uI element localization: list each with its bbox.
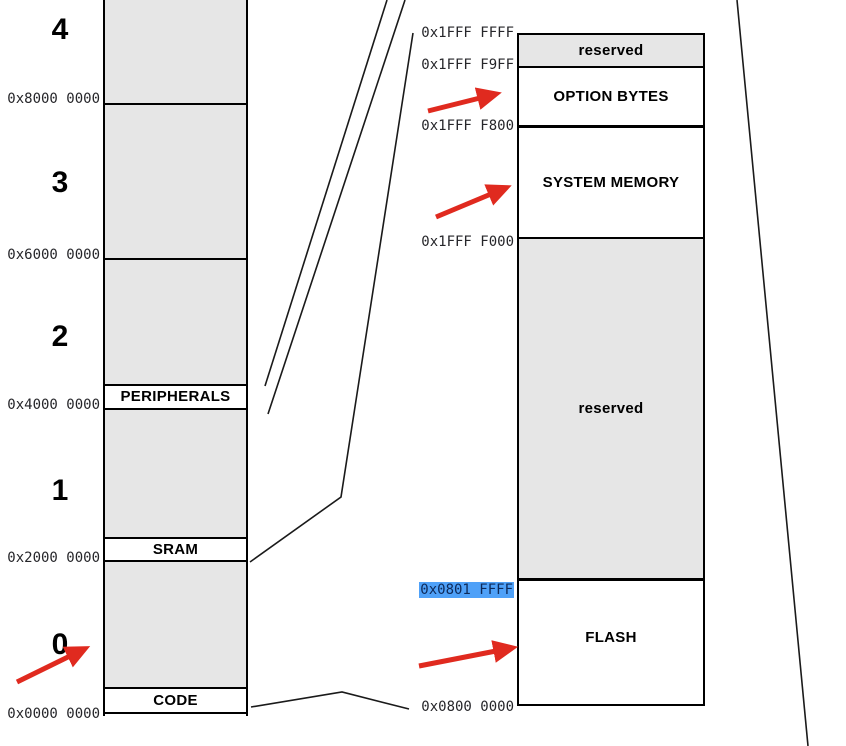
address-0x0801FFFF-selected: 0x0801 FFFF [400,581,514,599]
address-0x20000000: 0x2000 0000 [0,549,100,567]
sram-band: SRAM [105,537,246,562]
sram-label: SRAM [105,541,246,558]
region-number-4: 4 [28,15,92,45]
region-0-block [105,562,246,687]
connector-line-code-bottom-to-detail-bottom [251,692,409,709]
region-3-block [105,105,246,260]
reserved-mid-block: reserved [519,237,703,578]
peripherals-band: PERIPHERALS [105,384,246,410]
code-band: CODE [105,687,246,714]
connector-line-right-edge [737,0,808,746]
address-0x40000000: 0x4000 0000 [0,396,100,414]
region-number-3: 3 [28,168,92,198]
connector-line-peripherals-bottom [268,0,405,414]
reserved-top-label: reserved [519,42,703,59]
region-number-0: 0 [28,630,92,660]
option-bytes-block: OPTION BYTES [519,66,703,125]
address-0x1FFFF9FF: 0x1FFF F9FF [400,56,514,74]
flash-label: FLASH [519,629,703,646]
selected-address-highlight[interactable]: 0x0801 FFFF [419,582,514,598]
connector-line-peripherals-top [265,0,387,386]
arrow-to-flash [419,651,496,666]
code-label: CODE [105,692,246,709]
region-1-block [105,410,246,537]
flash-block: FLASH [519,578,703,694]
memory-map-diagram: PERIPHERALS SRAM CODE 4 3 2 1 0 0x8000 0… [0,0,846,746]
arrow-to-system-memory [436,194,491,217]
address-0x80000000: 0x8000 0000 [0,90,100,108]
address-0x1FFFF800: 0x1FFF F800 [400,117,514,135]
address-0x1FFFF000: 0x1FFF F000 [400,233,514,251]
option-bytes-label: OPTION BYTES [519,88,703,105]
reserved-top-block: reserved [519,35,703,66]
detail-column: reserved OPTION BYTES SYSTEM MEMORY rese… [517,33,705,706]
region-number-2: 2 [28,322,92,352]
address-0x60000000: 0x6000 0000 [0,246,100,264]
peripherals-label: PERIPHERALS [105,388,246,405]
connector-line-code-top-to-detail-top [250,33,413,562]
system-memory-block: SYSTEM MEMORY [519,125,703,237]
region-2-block [105,260,246,384]
left-memory-column: PERIPHERALS SRAM CODE [103,0,248,716]
address-0x08000000: 0x0800 0000 [400,698,514,716]
address-0x00000000: 0x0000 0000 [0,705,100,723]
reserved-mid-label: reserved [519,400,703,417]
region-number-1: 1 [28,476,92,506]
address-0x1FFFFFFF: 0x1FFF FFFF [400,24,514,42]
region-4-block [105,0,246,105]
arrow-to-option-bytes [428,98,480,111]
system-memory-label: SYSTEM MEMORY [519,174,703,191]
